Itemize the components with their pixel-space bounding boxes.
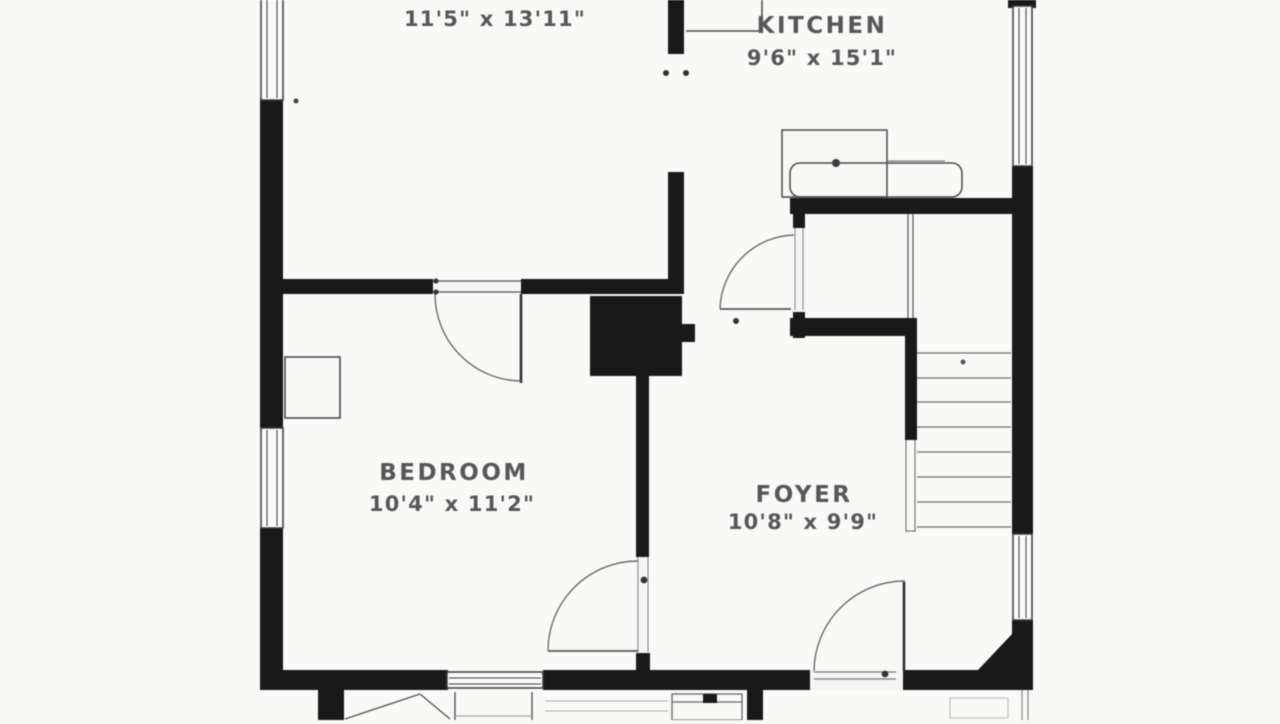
stair-start-dot xyxy=(961,360,966,365)
bedroom-dims: 10'4" x 11'2" xyxy=(369,492,535,516)
wall-left-upper xyxy=(260,98,283,428)
stair-treads xyxy=(917,353,1011,527)
wall-right-lower xyxy=(1012,620,1033,680)
wall-bottom-left xyxy=(260,670,448,690)
living-room-dims: 11'5" x 13'11" xyxy=(404,7,586,31)
wall-bedroom-top-left xyxy=(260,279,433,294)
bedroom-label: BEDROOM xyxy=(379,460,529,486)
bedroom-hall-door xyxy=(433,278,521,383)
door-swing-arc xyxy=(548,561,638,651)
wall-stair-left xyxy=(905,330,917,440)
staircase xyxy=(906,214,1011,532)
floor-plan-image: 11'5" x 13'11" KITCHEN 9'6" x 15'1" BEDR… xyxy=(0,0,1280,720)
window-right-top xyxy=(1013,6,1032,166)
wall-kitchen-bottom xyxy=(790,198,1012,214)
porch-wall-stub-mid xyxy=(747,690,763,720)
wall-foyer-top xyxy=(790,318,917,336)
door-hinge-dot xyxy=(433,278,438,283)
floor-plan-drawing: 11'5" x 13'11" KITCHEN 9'6" x 15'1" BEDR… xyxy=(0,0,1280,720)
door-hinge-dot xyxy=(882,671,889,678)
kitchen-dims: 9'6" x 15'1" xyxy=(747,46,897,70)
wall-bedroom-foyer-stub xyxy=(636,653,650,673)
window-dot xyxy=(294,99,299,104)
stair-partition xyxy=(908,214,913,320)
right-porch-outline xyxy=(950,698,1008,718)
bedroom-foyer-door xyxy=(548,557,650,653)
wall-bedroom-foyer xyxy=(636,376,649,557)
foyer-kitchen-door xyxy=(720,228,806,324)
floor-plan-canvas: 11'5" x 13'11" KITCHEN 9'6" x 15'1" BEDR… xyxy=(0,0,1280,720)
window-right-bottom xyxy=(1013,534,1032,620)
wall-interior-top-b xyxy=(668,172,684,282)
left-porch-braces xyxy=(345,692,532,720)
bedroom-closet xyxy=(285,357,340,418)
wall-corner-chamfer xyxy=(978,634,1012,670)
right-porch-post xyxy=(1022,690,1028,720)
window-bedroom-bottom xyxy=(447,672,543,688)
door-swing-arc xyxy=(435,294,521,381)
window-left-top xyxy=(261,0,299,104)
stair-stringer xyxy=(906,440,915,532)
porch-step-blob xyxy=(703,694,717,703)
window-left-bottom xyxy=(261,428,283,528)
door-hinge-dot xyxy=(733,318,739,324)
door-swing-arc xyxy=(720,235,794,309)
door-hinge-dot xyxy=(641,577,648,584)
front-door xyxy=(810,581,905,690)
door-swing-arc xyxy=(814,581,905,671)
wall-interior-top-a xyxy=(668,0,684,54)
door-hinge-dot xyxy=(433,289,438,294)
wall-foyer-west-a xyxy=(793,198,805,228)
porch-wall-stub-left xyxy=(318,690,344,720)
chimney xyxy=(590,296,682,376)
wall-bottom-mid xyxy=(543,670,810,690)
porch-details xyxy=(345,690,1028,720)
wall-right-upper xyxy=(1012,166,1033,534)
cased-opening-dots xyxy=(663,70,689,76)
wall-left-lower xyxy=(260,528,283,690)
kitchen-label: KITCHEN xyxy=(757,13,888,39)
chimney-bump xyxy=(682,324,695,342)
foyer-label: FOYER xyxy=(755,482,852,508)
kitchen-upper-counter xyxy=(686,0,762,31)
foyer-dims: 10'8" x 9'9" xyxy=(728,510,878,534)
porch-floor-lines xyxy=(545,701,668,711)
room-labels: 11'5" x 13'11" KITCHEN 9'6" x 15'1" BEDR… xyxy=(369,7,897,534)
wall-bedroom-top-right xyxy=(521,279,684,294)
